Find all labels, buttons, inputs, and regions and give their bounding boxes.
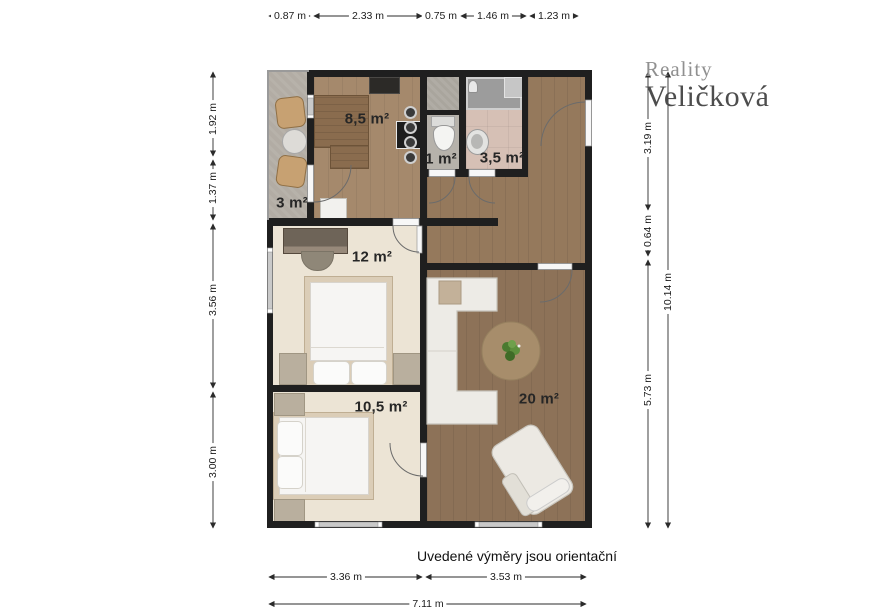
disclaimer-text: Uvedené výměry jsou orientační xyxy=(417,548,617,564)
sofa-cushion xyxy=(439,281,461,304)
wc-area-label: 1 m² xyxy=(425,151,457,168)
bedroom-large-window xyxy=(268,248,273,313)
dim-left-1: 1.92 m xyxy=(207,100,219,138)
living-room-area-label: 20 m² xyxy=(519,391,559,408)
dim-right-3: 5.73 m xyxy=(642,371,654,409)
floorplan-page: 8,5 m² 1 m² 3,5 m² 3 m² 12 m² 10,5 m² 20… xyxy=(0,0,871,615)
living-room-door xyxy=(538,264,572,270)
balcony-area-label: 3 m² xyxy=(276,195,308,212)
bedroom-large-door-leaf xyxy=(417,226,422,253)
dim-top-5: 1.23 m xyxy=(535,10,573,22)
dim-left-3: 3.56 m xyxy=(207,281,219,319)
lounge-chair xyxy=(484,422,576,521)
entry-door xyxy=(586,100,592,146)
bedroom-small-window xyxy=(315,522,382,527)
bedroom-small-door xyxy=(421,443,427,477)
dim-bottom-total: 7.11 m xyxy=(409,598,446,610)
kitchen-area-label: 8,5 m² xyxy=(345,111,390,128)
balcony-door xyxy=(308,165,314,202)
dim-top-2: 2.33 m xyxy=(349,10,387,22)
bathroom-area-label: 3,5 m² xyxy=(480,150,525,167)
bedroom-large-door xyxy=(393,219,419,226)
dim-bottom-1: 3.36 m xyxy=(327,571,365,583)
kitchen-window xyxy=(308,95,314,118)
dim-top-3: 0.75 m xyxy=(422,10,460,22)
bedroom-large-area-label: 12 m² xyxy=(352,249,392,266)
dim-right-total: 10.14 m xyxy=(662,270,674,314)
wc-door xyxy=(429,170,455,177)
dim-left-4: 3.00 m xyxy=(207,443,219,481)
dim-top-1: 0.87 m xyxy=(271,10,309,22)
agency-logo: Reality Veličková xyxy=(645,59,769,112)
dim-top-4: 1.46 m xyxy=(474,10,512,22)
dim-bottom-2: 3.53 m xyxy=(487,571,525,583)
agency-logo-line1: Reality xyxy=(645,59,769,80)
dim-right-2: 0.64 m xyxy=(642,212,654,250)
bedroom-small-area-label: 10,5 m² xyxy=(354,399,407,416)
dim-left-2: 1.37 m xyxy=(207,169,219,207)
agency-logo-line2: Veličková xyxy=(645,82,769,112)
dim-right-1: 3.19 m xyxy=(642,119,654,157)
bathroom-door xyxy=(469,170,495,177)
living-room-window xyxy=(475,522,542,527)
